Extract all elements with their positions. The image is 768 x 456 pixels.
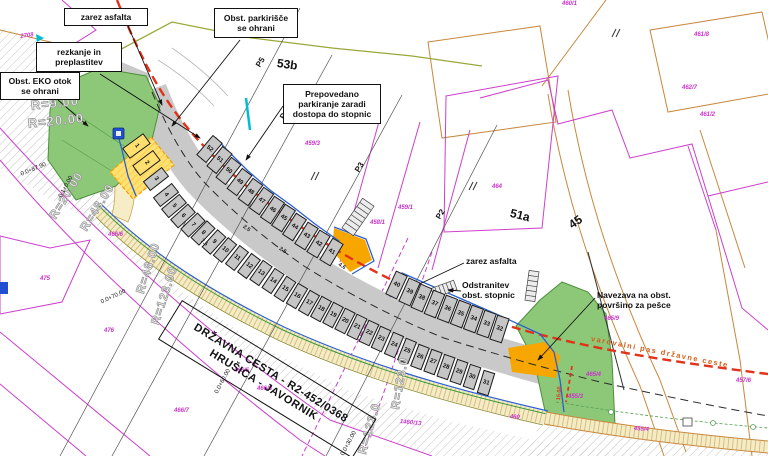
parcel-461-8: 461/8 xyxy=(694,32,709,38)
parcel-461-2: 461/2 xyxy=(700,112,715,118)
label-obst-eko-otok: Obst. EKO otok se ohrani xyxy=(0,72,80,100)
parcel-455-4: 455/4 xyxy=(634,426,649,433)
label-zarez-asfalta-right: zarez asfalta xyxy=(466,256,517,266)
parcel-466-7: 466/7 xyxy=(174,408,189,414)
label-building-53b: 53b xyxy=(276,56,298,73)
parcel-476: 476 xyxy=(104,328,114,334)
parcel-460: 460 xyxy=(509,414,520,421)
label-odstranitev-stopnic: Odstranitev obst. stopnic xyxy=(462,280,515,300)
label-rezkanje: rezkanje in preplastitev xyxy=(36,42,122,72)
site-plan-canvas: DRŽAVNA CESTA - R2-452/0368 HRUŠICA - JA… xyxy=(0,0,768,456)
parcel-459-1: 459/1 xyxy=(398,205,413,211)
label-navezava: Navezava na obst. površino za pešce xyxy=(597,290,671,310)
cyan-marker-icon xyxy=(36,34,44,42)
label-dim-15: 15.00 xyxy=(556,386,564,400)
label-prepovedano: Prepovedano parkiranje zaradi dostopa do… xyxy=(283,84,381,124)
parcel-459-3: 459/3 xyxy=(305,141,320,147)
parcel-458-1: 458/1 xyxy=(370,220,385,226)
parcel-465-4: 465/4 xyxy=(586,372,601,378)
parcel-460-1: 460/1 xyxy=(562,1,577,7)
label-obst-parkirisce: Obst. parkirišče se ohrani xyxy=(214,8,298,38)
traffic-sign-icon xyxy=(113,128,124,139)
label-zarez-asfalta-top: zarez asfalta xyxy=(64,8,148,26)
parcel-466-6: 466/6 xyxy=(108,232,123,238)
parcel-475: 475 xyxy=(40,276,50,282)
parcel-462-7: 462/7 xyxy=(682,85,697,91)
parcel-464: 464 xyxy=(492,184,502,190)
parcel-455-3: 455/3 xyxy=(568,394,583,400)
parcel-465-9: 465/9 xyxy=(604,316,619,322)
sign-icon-left-edge xyxy=(0,282,8,294)
parcel-457-6: 457/6 xyxy=(736,378,751,384)
